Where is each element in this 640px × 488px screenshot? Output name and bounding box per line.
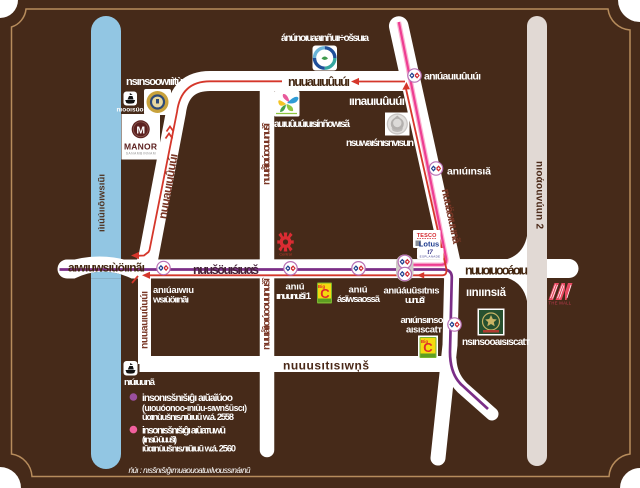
svg-text:C: C	[320, 286, 330, 301]
svg-text:nsuwaıśnısnvısun: nsuwaıśnısnvısun	[346, 138, 414, 149]
svg-text:ıūαınùušnısлıŭıuū w.á. 2560: ıūαınùušnısлıŭıuū w.á. 2560	[142, 443, 236, 453]
svg-text:ńúı : nısšnıšıĝıтuaouoatuıılvo: ńúı : nısšnıšıĝıтuaouoatuıılvoussınáınŭ	[129, 466, 251, 475]
svg-text:nuuıåîıoıúoouunušî: nuuıåîıoıúoouunušî	[261, 277, 273, 350]
svg-text:ıınauıuûuúı: ıınauıuûuúı	[349, 94, 405, 108]
svg-text:Central: Central	[279, 253, 291, 257]
svg-text:nuuusıtısıwņš: nuuusıtısıwņš	[283, 359, 369, 373]
svg-text:nıooısúо: nıooısúо	[116, 107, 143, 114]
svg-text:aıwıuwsıùöıınãı: aıwıuwsıùöıınãı	[68, 261, 145, 275]
svg-text:nıúıuunã: nıúıuunã	[124, 377, 156, 388]
svg-text:anıúauıuûuúı: anıúauıuûuúı	[424, 71, 481, 83]
svg-text:MANOR: MANOR	[124, 142, 158, 152]
svg-text:uunušî: uunušî	[405, 295, 426, 306]
svg-text:C: C	[423, 340, 433, 355]
svg-text:ásĩwsaossã: ásĩwsaossã	[337, 294, 381, 305]
svg-text:aısıscatт: aısıscatт	[406, 324, 442, 335]
svg-text:ūαınùušnısлıŭıuū w.á. 2558: ūαınùušnısлıŭıuū w.á. 2558	[142, 412, 234, 422]
svg-text:nıoάouvúun 2: nıoάouvúun 2	[534, 161, 545, 229]
svg-text:nsınsoowııìtù: nsınsoowııìtù	[126, 76, 183, 88]
svg-text:nuuauıuûuúı: nuuauıuûuúı	[288, 75, 350, 89]
svg-text:auıuûuúıuısínñowısã: auıuûuúıuısínñowısã	[274, 119, 350, 130]
svg-text:Lotus: Lotus	[419, 240, 439, 249]
svg-text:ıınıınsıă: ıınıınsıă	[466, 287, 507, 299]
svg-text:ESPLANADE: ESPLANADE	[420, 255, 441, 259]
svg-text:M: M	[136, 124, 145, 136]
svg-text:nuuıåîıoıúoouunušî: nuuıåîıoıúoouunušî	[261, 122, 273, 185]
svg-text:nuuoıuooáoıu: nuuoıuooáoıu	[465, 264, 528, 278]
svg-text:anıúınsıă: anıúınsıă	[447, 166, 491, 178]
svg-text:ánúnoıuaaınñuıı÷ošsuıa: ánúnoıuaaınñuıı÷ošsuıa	[281, 33, 369, 44]
svg-text:nuušöuıśıuαš: nuušöuıśıuαš	[193, 263, 259, 277]
svg-text:SANAMBINNAM: SANAMBINNAM	[126, 152, 156, 156]
svg-text:ıìıúúııôıwsıũı: ıìıúúııôıwsıũı	[97, 174, 108, 232]
svg-text:nsınsooaısıscatт: nsınsooaısıscatт	[462, 337, 530, 348]
svg-text:nuuauıuûuúı: nuuauıuûuúı	[139, 291, 151, 349]
svg-text:ıınuunušî 1: ıınuunušî 1	[276, 291, 312, 302]
svg-text:wsıùöıınãı: wsıùöıınãı	[152, 294, 189, 305]
svg-text:THE MALL: THE MALL	[549, 301, 572, 306]
